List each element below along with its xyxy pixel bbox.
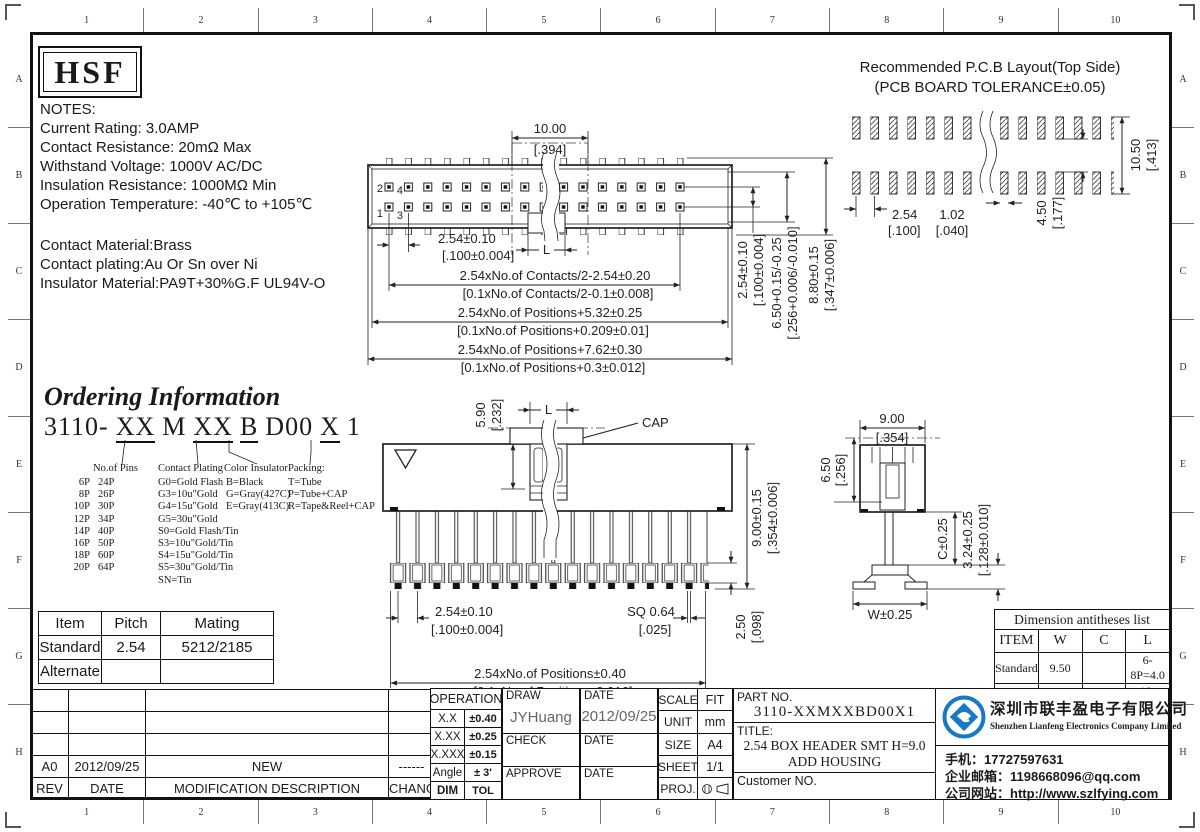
company-website: 公司网站：http://www.szlfying.com: [945, 785, 1158, 802]
mating-header-item: Item: [39, 612, 102, 636]
pin4-label: 4: [397, 185, 403, 197]
approve-cell: APPROVE: [502, 766, 580, 800]
dimension-list-title: Dimension antitheses list: [995, 610, 1170, 630]
table-row: [31, 734, 435, 756]
frontview-pitch-dim: 2.54±0.10: [435, 604, 493, 619]
corner-mark: [1179, 812, 1195, 828]
pins-list-col2: 24P26P30P34P40P50P60P64P: [98, 477, 114, 575]
frontview-foot-dim-in: [.098]: [749, 611, 764, 644]
table-row: A0 2012/09/25 NEW ------: [31, 756, 435, 778]
frontview-l-dim: L: [545, 402, 552, 417]
rev-id: A0: [31, 756, 69, 778]
pins-label: No.of Pins: [93, 463, 138, 474]
hsf-logo-text: HSF: [43, 52, 137, 92]
ordering-title: Ordering Information: [44, 382, 280, 412]
topview-pos2-dim-in: [0.1xNo.of Positions+0.3±0.012]: [461, 360, 646, 375]
company-name-card: 深圳市联丰盈电子有限公司 Shenzhen Lianfeng Electroni…: [936, 689, 1168, 746]
code-color: B: [240, 412, 258, 443]
topview-capw-dim-in: [.394]: [534, 142, 567, 157]
tol-value: ±0.40: [464, 709, 502, 728]
topview-rowpitch-dim: 2.54±0.10: [735, 241, 750, 299]
title-line1: 2.54 BOX HEADER SMT H=9.0: [734, 738, 935, 754]
frontview-sq-dim: SQ 0.64: [627, 604, 675, 619]
draw-date: 2012/09/25: [581, 708, 657, 725]
table-row: Dimension antitheses list: [995, 610, 1170, 630]
hsf-logo: HSF: [38, 46, 142, 98]
sideview-width-dim: 9.00: [879, 411, 904, 426]
packing-label: Packing:: [288, 463, 325, 474]
table-row: ITEM W C L: [995, 630, 1170, 653]
topview-pitch-dim: 2.54±0.10: [438, 231, 496, 246]
notes-title: NOTES:: [40, 100, 325, 119]
frontview-height-dim-in: [.354±0.006]: [765, 482, 780, 554]
sideview-footw-dim: W±0.25: [868, 607, 913, 622]
pcb-pitch-dim-in: [.100]: [888, 223, 921, 238]
tol-value: ±0.25: [464, 727, 502, 746]
proj-label: PROJ.: [658, 777, 698, 800]
table-row: [31, 690, 435, 712]
check-cell: CHECK: [502, 733, 580, 767]
grid-columns-bottom: 12345678910: [30, 800, 1172, 824]
pin2-label: 2: [377, 183, 383, 195]
drawing-sheet: 12345678910 12345678910 ABCDEFGH ABCDEFG…: [0, 0, 1200, 832]
draw-cell: DRAW JYHuang: [502, 688, 580, 734]
colors-list: B=BlackG=Gray(427C)E=Gray(413C): [226, 477, 290, 514]
topview-rowpitch-dim-in: [.100±0.004]: [751, 234, 766, 306]
topview-pos1-dim: 2.54xNo.of Positions+5.32±0.25: [458, 305, 643, 320]
frontview-caph-dim-in: [.232]: [489, 399, 504, 432]
company-name-en: Shenzhen Lianfeng Electronics Company Li…: [990, 721, 1181, 731]
ordering-code: 3110-XXMXXBD00X1: [44, 412, 368, 442]
part-no-cell: PART NO. 3110-XXMXXBD00X1: [733, 688, 936, 723]
unit-label: UNIT: [658, 710, 698, 734]
company-phone: 手机：17727597631: [945, 751, 1158, 768]
draw-date-cell: DATE 2012/09/25: [580, 688, 658, 734]
pin1-label: 1: [377, 208, 383, 220]
grid-rows-left: ABCDEFGH: [8, 32, 30, 800]
tol-label: Angle: [430, 763, 465, 782]
topview-contacts-dim-in: [0.1xNo.of Contacts/2-0.1±0.008]: [463, 286, 654, 301]
revision-table: A0 2012/09/25 NEW ------ REV DATE MODIFI…: [30, 689, 435, 800]
mating-header-pitch: Pitch: [102, 612, 161, 636]
table-row: [31, 712, 435, 734]
tol-label: DIM: [430, 781, 465, 800]
company-name-cn: 深圳市联丰盈电子有限公司: [990, 697, 1188, 719]
table-row: Standard 2.54 5212/2185: [39, 636, 274, 660]
pcb-rowgap-dim: 4.50: [1034, 200, 1049, 225]
scale-label: SCALE: [658, 688, 698, 711]
pcb-layout-drawing: 2.54 [.100] 1.02 [.040] 4.50 [.177] 10.5…: [840, 95, 1185, 265]
front-view-drawing: CAP 5.90 [.232] L 9.00±0.15 [.354±0.006]…: [355, 390, 805, 710]
sideview-depth-dim-in: [.256]: [833, 454, 848, 487]
notes-lines: Current Rating: 3.0AMPContact Resistance…: [40, 119, 325, 214]
pcb-pitch-dim: 2.54: [892, 207, 917, 222]
company-contacts: 手机：17727597631 企业邮箱：1198668096@qq.com 公司…: [945, 751, 1158, 802]
topview-contacts-dim: 2.54xNo.of Contacts/2-2.54±0.20: [460, 268, 651, 283]
code-pins: XX: [116, 412, 156, 443]
side-view-drawing: 9.00 [.354] 6.50 [.256] C±0.25: [820, 390, 1070, 625]
tol-value: TOL: [464, 781, 502, 800]
frontview-total-dim: 2.54xNo.of Positions±0.40: [474, 666, 626, 681]
frontview-pitch-dim-in: [.100±0.004]: [431, 622, 503, 637]
scale-value: FIT: [697, 688, 733, 711]
topview-pitch-dim-in: [.100±0.004]: [442, 248, 514, 263]
topview-pos2-dim: 2.54xNo.of Positions+7.62±0.30: [458, 342, 643, 357]
code-base: 3110-: [44, 412, 109, 441]
rev-date: 2012/09/25: [69, 756, 146, 778]
pcb-layout-title: Recommended P.C.B Layout(Top Side) (PCB …: [820, 58, 1160, 98]
topview-h1-dim: 6.50+0.15/-0.25: [769, 237, 784, 328]
cap-label: CAP: [642, 415, 669, 430]
top-view-drawing: 2 4 1 3 10.00 [.394] 2.54±0.10 [.100±0.0…: [360, 95, 840, 395]
code-plating: XX: [193, 412, 233, 443]
color-label: Color Insulator: [224, 463, 288, 474]
sheet-value: 1/1: [697, 755, 733, 778]
approve-date-cell: DATE: [580, 766, 658, 800]
frontview-sq-dim-in: [.025]: [639, 622, 672, 637]
material-lines: Contact Material:BrassContact plating:Au…: [40, 236, 325, 293]
notes-block: NOTES: Current Rating: 3.0AMPContact Res…: [40, 100, 325, 293]
tol-value: ± 3': [464, 763, 502, 782]
rev-change: ------: [389, 756, 435, 778]
pcb-padw-dim-in: [.040]: [936, 223, 969, 238]
check-date-cell: DATE: [580, 733, 658, 767]
company-email: 企业邮箱：1198668096@qq.com: [945, 768, 1158, 785]
frontview-height-dim: 9.00±0.15: [749, 489, 764, 547]
table-row: Alternate: [39, 660, 274, 684]
table-row: Item Pitch Mating: [39, 612, 274, 636]
rev-description: NEW: [146, 756, 389, 778]
sheet-label: SHEET: [658, 755, 698, 778]
frontview-foot-dim: 2.50: [733, 614, 748, 639]
sideview-width-dim-in: [.354]: [876, 430, 909, 445]
sideview-c-dim: C±0.25: [935, 518, 950, 560]
mating-standard-pitch: 2.54: [102, 636, 161, 660]
pins-list-col1: 6P8P10P12P14P16P18P20P: [60, 477, 90, 575]
mating-standard-mating: 5212/2185: [161, 636, 274, 660]
topview-capw-dim: 10.00: [534, 121, 567, 136]
tol-value: ±0.15: [464, 745, 502, 764]
company-block: 深圳市联丰盈电子有限公司 Shenzhen Lianfeng Electroni…: [935, 688, 1169, 800]
pin3-label: 3: [397, 210, 403, 222]
corner-mark: [5, 812, 21, 828]
grid-columns-top: 12345678910: [30, 8, 1172, 32]
sideview-stub-dim-in: [.128±0.010]: [976, 504, 991, 576]
title-cell: TITLE: 2.54 BOX HEADER SMT H=9.0 ADD HOU…: [733, 722, 936, 773]
mating-table: Item Pitch Mating Standard 2.54 5212/218…: [38, 611, 274, 684]
table-row: REV DATE MODIFICATION DESCRIPTION CHANGE: [31, 778, 435, 800]
pcb-title-line1: Recommended P.C.B Layout(Top Side): [820, 58, 1160, 78]
pcb-rowgap-dim-in: [.177]: [1050, 197, 1065, 230]
tol-label: X.XX: [430, 727, 465, 746]
corner-mark: [5, 4, 21, 20]
tol-label: X.X: [430, 709, 465, 728]
draw-name: JYHuang: [503, 709, 579, 726]
pcb-padw-dim: 1.02: [939, 207, 964, 222]
topview-h2-dim-in: [.347±0.006]: [822, 239, 837, 311]
pcb-totalh-dim: 10.50: [1128, 139, 1143, 172]
size-value: A4: [697, 733, 733, 756]
topview-pos1-dim-in: [0.1xNo.of Positions+0.209±0.01]: [457, 323, 649, 338]
plating-label: Contact Plating: [158, 463, 223, 474]
topview-h2-dim: 8.80±0.15: [806, 246, 821, 304]
company-logo-icon: [941, 694, 987, 740]
code-pack: X: [320, 412, 340, 443]
topview-h1-dim-in: [.256+0.006/-0.010]: [785, 226, 800, 339]
mating-header-mating: Mating: [161, 612, 274, 636]
frontview-caph-dim: 5.90: [473, 402, 488, 427]
title-line2: ADD HOUSING: [734, 754, 935, 770]
code-d: D00: [265, 412, 313, 441]
operation-header: OPERATION: [430, 688, 502, 710]
customer-no-cell: Customer NO.: [733, 772, 936, 800]
proj-value: [697, 777, 733, 800]
size-label: SIZE: [658, 733, 698, 756]
table-row: Standard 9.50 6-8P=4.0: [995, 653, 1170, 684]
sideview-stub-dim: 3.24±0.25: [960, 511, 975, 569]
corner-mark: [1179, 4, 1195, 20]
mating-standard: Standard: [39, 636, 102, 660]
projection-symbol-icon: [700, 782, 730, 796]
mating-alternate: Alternate: [39, 660, 102, 684]
topview-l-dim: L: [543, 242, 550, 257]
pcb-totalh-dim-in: [.413]: [1144, 139, 1159, 172]
unit-value: mm: [697, 710, 733, 734]
tol-label: X.XXX: [430, 745, 465, 764]
code-m: M: [162, 412, 186, 441]
sideview-depth-dim: 6.50: [818, 457, 833, 482]
part-no-value: 3110-XXMXXBD00X1: [734, 704, 935, 721]
